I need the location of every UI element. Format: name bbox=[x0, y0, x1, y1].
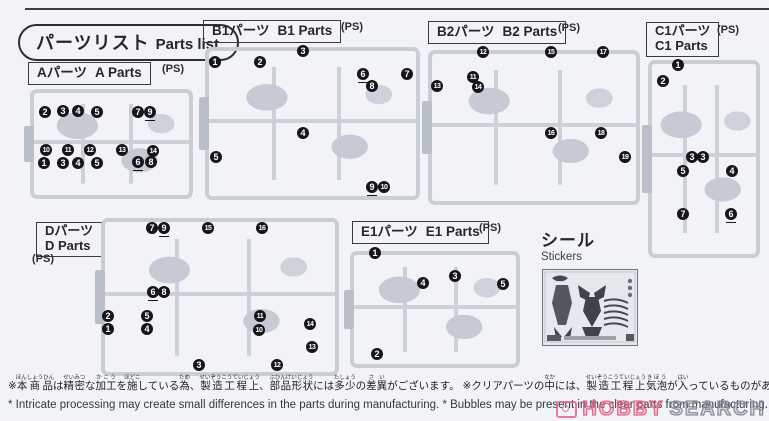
part-number-badge-C1-5: 5 bbox=[677, 165, 689, 177]
section-label-C1: C1パーツC1 Parts bbox=[646, 22, 719, 57]
section-label-E1: E1パーツE1 Parts bbox=[352, 221, 489, 244]
part-number-badge-A-5: 5 bbox=[91, 106, 103, 118]
part-number-badge-B2-14: 14 bbox=[472, 81, 484, 93]
section-label-en: B1 Parts bbox=[278, 23, 333, 38]
section-label-D: DパーツD Parts bbox=[36, 222, 102, 257]
section-label-jp: C1パーツ bbox=[655, 24, 710, 39]
part-number-badge-D-16: 16 bbox=[256, 222, 268, 234]
section-label-B2: B2パーツB2 Parts bbox=[428, 21, 566, 44]
material-note-B2: (PS) bbox=[558, 22, 580, 34]
part-number-badge-E1-2: 2 bbox=[371, 348, 383, 360]
part-number-badge-C1-4: 4 bbox=[726, 165, 738, 177]
part-number-badge-D-8: 8 bbox=[158, 286, 170, 298]
part-number-badge-A-11: 11 bbox=[62, 144, 74, 156]
part-number-badge-A-3: 3 bbox=[57, 157, 69, 169]
runner-B2 bbox=[428, 50, 640, 205]
part-number-badge-B2-12: 12 bbox=[477, 46, 489, 58]
part-number-badge-B1-2: 2 bbox=[254, 56, 266, 68]
part-number-badge-D-15: 15 bbox=[202, 222, 214, 234]
part-number-badge-C1-1: 1 bbox=[672, 59, 684, 71]
runner-A bbox=[30, 89, 193, 199]
section-label-jp: E1パーツ bbox=[361, 224, 418, 239]
section-label-B1: B1パーツB1 Parts bbox=[203, 20, 341, 43]
part-number-badge-A-13: 13 bbox=[116, 144, 128, 156]
part-number-badge-E1-3: 3 bbox=[449, 270, 461, 282]
part-number-badge-A-1: 1 bbox=[38, 157, 50, 169]
material-note-A: (PS) bbox=[162, 63, 184, 75]
part-number-badge-A-9: 9 bbox=[144, 106, 156, 118]
material-note-C1: (PS) bbox=[717, 24, 739, 36]
part-number-badge-B2-19: 19 bbox=[619, 151, 631, 163]
section-label-en: B2 Parts bbox=[503, 24, 558, 39]
part-number-badge-D-14: 14 bbox=[304, 318, 316, 330]
part-number-badge-C1-2: 2 bbox=[657, 75, 669, 87]
material-note-E1: (PS) bbox=[479, 222, 501, 234]
part-number-badge-C1-7: 7 bbox=[677, 208, 689, 220]
parts-list-page: パーツリストParts list AパーツA Parts(PS)23457910… bbox=[0, 0, 769, 421]
part-number-badge-B2-17: 17 bbox=[597, 46, 609, 58]
part-number-badge-A-12: 12 bbox=[84, 144, 96, 156]
part-number-badge-A-8: 8 bbox=[145, 156, 157, 168]
part-number-badge-D-13: 13 bbox=[306, 341, 318, 353]
footnote-english: * Intricate processing may create small … bbox=[8, 399, 764, 411]
part-number-badge-B1-6: 6 bbox=[357, 68, 369, 80]
part-number-badge-B1-5: 5 bbox=[210, 151, 222, 163]
part-number-badge-B1-1: 1 bbox=[209, 56, 221, 68]
stickers-label-en: Stickers bbox=[541, 251, 595, 264]
part-number-badge-B2-13: 13 bbox=[431, 80, 443, 92]
section-label-jp: B2パーツ bbox=[437, 24, 495, 39]
part-number-badge-D-10: 10 bbox=[253, 324, 265, 336]
part-number-badge-A-6: 6 bbox=[132, 156, 144, 168]
section-label-en: C1 Parts bbox=[655, 39, 710, 54]
part-number-badge-C1-6: 6 bbox=[725, 208, 737, 220]
section-label-jp: B1パーツ bbox=[212, 23, 270, 38]
runner-D bbox=[101, 218, 339, 376]
part-number-badge-E1-5: 5 bbox=[497, 278, 509, 290]
part-number-badge-B1-4: 4 bbox=[297, 127, 309, 139]
part-number-badge-D-11: 11 bbox=[254, 310, 266, 322]
stickers-label: シール Stickers bbox=[541, 232, 595, 263]
part-number-badge-B2-16: 16 bbox=[545, 127, 557, 139]
part-number-badge-D-9: 9 bbox=[158, 222, 170, 234]
part-number-badge-A-4: 4 bbox=[72, 105, 84, 117]
part-number-badge-E1-4: 4 bbox=[417, 277, 429, 289]
part-number-badge-B1-9: 9 bbox=[366, 181, 378, 193]
footnote-japanese: ※本商品ほんしょうひんは精密せいみつな加工かこうを施ほどこしている為ため、製造工… bbox=[8, 375, 764, 393]
material-note-B1: (PS) bbox=[341, 21, 363, 33]
part-number-badge-D-3: 3 bbox=[193, 359, 205, 371]
stickers-label-jp: シール bbox=[541, 232, 595, 251]
part-number-badge-C1-3: 3 bbox=[697, 151, 709, 163]
part-number-badge-D-2: 2 bbox=[102, 310, 114, 322]
part-number-badge-A-10: 10 bbox=[40, 144, 52, 156]
part-number-badge-D-1: 1 bbox=[102, 323, 114, 335]
part-number-badge-A-3: 3 bbox=[57, 105, 69, 117]
section-label-jp: Dパーツ bbox=[45, 224, 93, 239]
material-note-D: (PS) bbox=[32, 253, 54, 265]
sticker-sheet bbox=[542, 269, 638, 346]
parts-list-title-jp: パーツリスト bbox=[36, 33, 150, 53]
part-number-badge-B2-15: 15 bbox=[545, 46, 557, 58]
part-number-badge-D-5: 5 bbox=[141, 310, 153, 322]
part-number-badge-D-4: 4 bbox=[141, 323, 153, 335]
part-number-badge-B1-7: 7 bbox=[401, 68, 413, 80]
part-number-badge-A-5: 5 bbox=[91, 157, 103, 169]
part-number-badge-B1-8: 8 bbox=[366, 80, 378, 92]
part-number-badge-A-2: 2 bbox=[39, 106, 51, 118]
section-label-en: E1 Parts bbox=[426, 224, 480, 239]
part-number-badge-E1-1: 1 bbox=[369, 247, 381, 259]
section-label-en: A Parts bbox=[95, 65, 142, 80]
part-number-badge-A-7: 7 bbox=[132, 106, 144, 118]
section-label-jp: Aパーツ bbox=[37, 65, 87, 80]
part-number-badge-B1-3: 3 bbox=[297, 45, 309, 57]
part-number-badge-A-4: 4 bbox=[72, 157, 84, 169]
part-number-badge-B1-10: 10 bbox=[378, 181, 390, 193]
section-label-en: D Parts bbox=[45, 239, 93, 254]
top-rule bbox=[25, 8, 769, 10]
part-number-badge-B2-18: 18 bbox=[595, 127, 607, 139]
part-number-badge-D-12: 12 bbox=[271, 359, 283, 371]
section-label-A: AパーツA Parts bbox=[28, 62, 151, 85]
runner-B1 bbox=[205, 47, 420, 200]
part-number-badge-D-7: 7 bbox=[146, 222, 158, 234]
